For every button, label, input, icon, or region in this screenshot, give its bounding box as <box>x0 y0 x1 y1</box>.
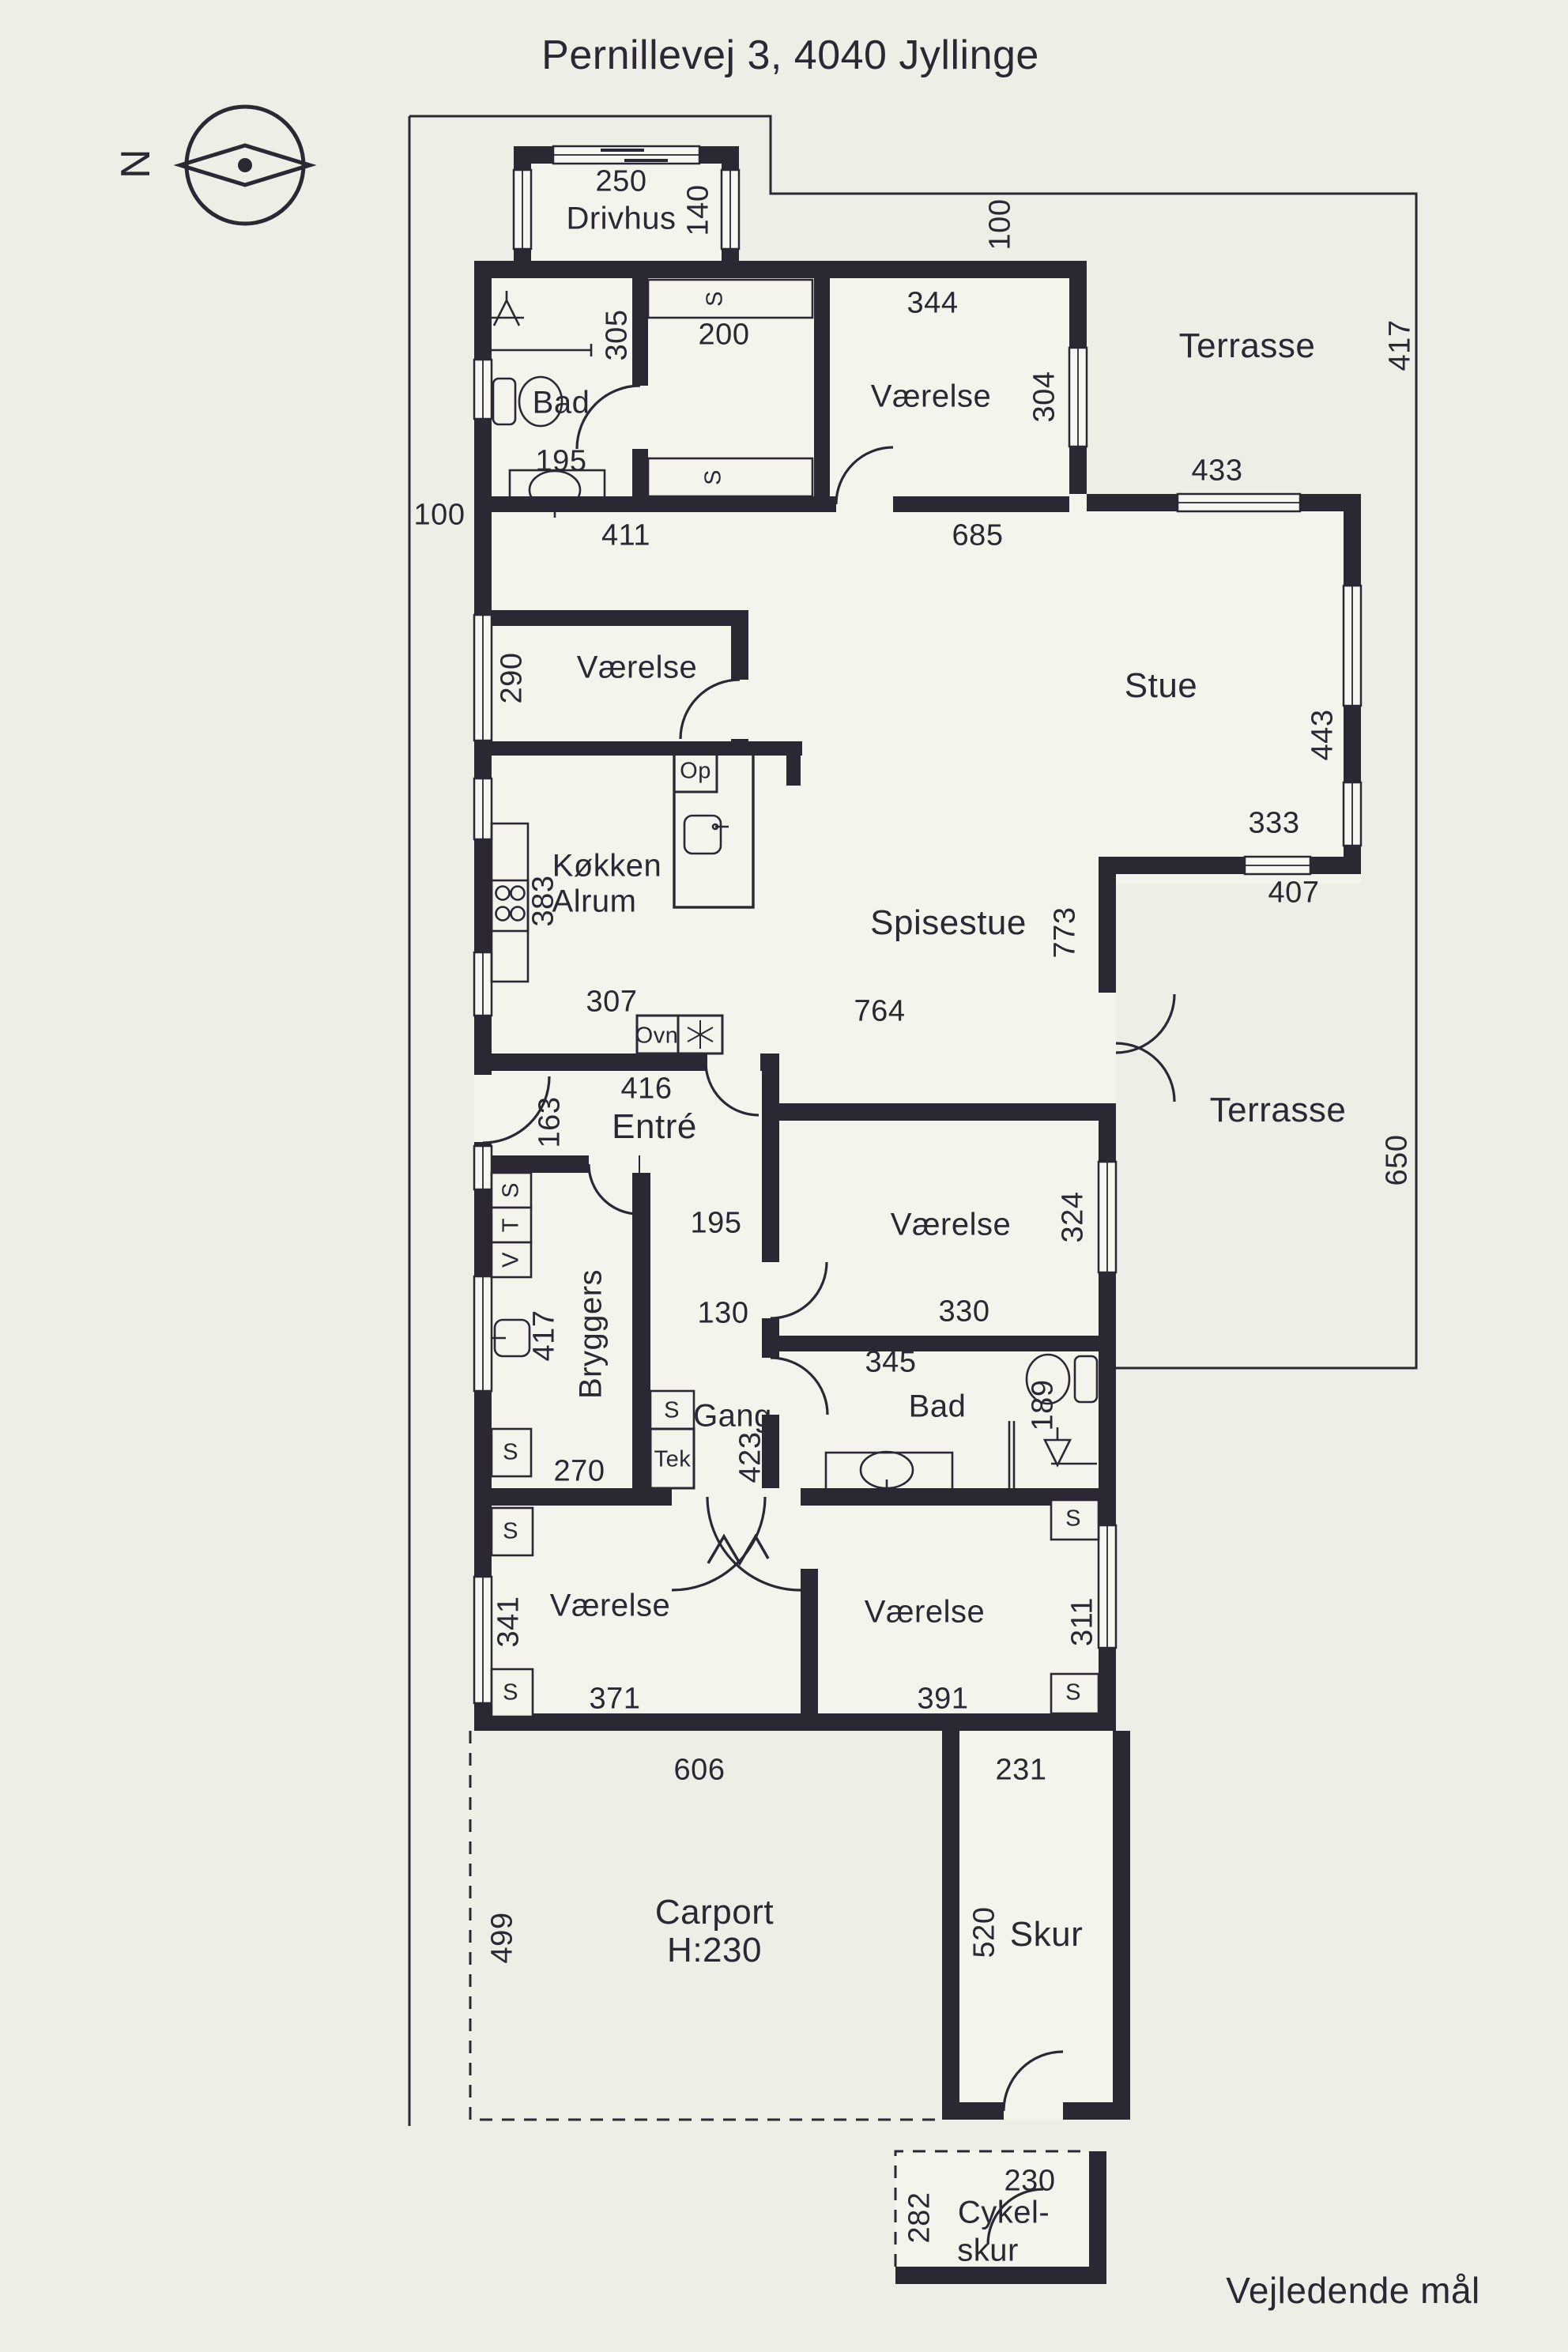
dim-drivhus-depth: 140 <box>682 185 716 236</box>
dim-gang-195: 195 <box>691 1207 742 1241</box>
dim-stue-685: 685 <box>952 519 1004 553</box>
dim-vaerelse-304: 304 <box>1028 371 1062 423</box>
closet-s-label: S <box>503 1440 518 1466</box>
dim-bad-195: 195 <box>536 445 587 479</box>
compass-north-label: N <box>112 149 160 179</box>
dishwasher-label: Op <box>680 759 711 785</box>
room-alrum: Alrum <box>552 884 637 920</box>
room-cykelskur-line1: Cykel- <box>958 2196 1050 2231</box>
dim-dressing-200: 200 <box>699 318 750 352</box>
room-vaerelse-ne: Værelse <box>871 379 991 415</box>
carport-height: H:230 <box>667 1931 762 1970</box>
dim-entre-163: 163 <box>533 1097 567 1148</box>
closet-s-label: S <box>1065 1680 1081 1706</box>
dim-vaerelse-330: 330 <box>939 1295 990 1329</box>
dim-koekken-383: 383 <box>527 876 561 927</box>
closet-s-label: S <box>701 469 727 485</box>
room-bad-n: Bad <box>533 386 590 421</box>
room-bryggers: Bryggers <box>574 1269 609 1399</box>
dim-vaerelse-391: 391 <box>918 1683 969 1717</box>
dim-stue-443: 443 <box>1306 710 1340 761</box>
dim-drivhus-width: 250 <box>596 165 647 199</box>
dim-vaerelse-311: 311 <box>1066 1597 1100 1646</box>
dim-cykelskur-230: 230 <box>1004 2165 1056 2199</box>
dim-south-231: 231 <box>996 1754 1047 1788</box>
footer-note: Vejledende mål <box>1226 2269 1480 2312</box>
dim-bad-345: 345 <box>865 1346 917 1380</box>
dim-433: 433 <box>1192 454 1243 488</box>
room-vaerelse-m: Værelse <box>891 1208 1011 1243</box>
dim-site-left: 100 <box>414 499 465 533</box>
dim-bryggers-417: 417 <box>528 1310 562 1362</box>
dim-bad-305: 305 <box>601 310 635 361</box>
dim-carport-499: 499 <box>486 1913 520 1964</box>
room-spisestue: Spisestue <box>870 903 1027 943</box>
washer-v-label: V <box>499 1252 525 1268</box>
room-cykelskur-line2: skur <box>957 2233 1019 2269</box>
dim-cykelskur-282: 282 <box>903 2192 937 2244</box>
dim-vaerelse-344: 344 <box>907 287 959 321</box>
room-carport: Carport <box>655 1893 774 1932</box>
room-gang: Gang <box>693 1399 772 1434</box>
room-terrasse-ne: Terrasse <box>1179 326 1316 366</box>
room-drivhus: Drivhus <box>566 202 676 237</box>
page-title: Pernillevej 3, 4040 Jyllinge <box>541 32 1039 79</box>
dim-south-606: 606 <box>674 1754 726 1788</box>
dim-skur-520: 520 <box>968 1907 1002 1958</box>
room-vaerelse-br: Værelse <box>865 1595 985 1630</box>
dim-site-top: 100 <box>984 199 1018 251</box>
dim-bad-189: 189 <box>1027 1380 1061 1431</box>
dim-vaerelse-324: 324 <box>1057 1192 1091 1243</box>
dim-gang-423: 423 <box>734 1432 768 1483</box>
dim-boundary-417: 417 <box>1384 320 1418 371</box>
closet-s-label: S <box>1065 1506 1081 1532</box>
room-skur: Skur <box>1010 1915 1083 1954</box>
closet-s-label: S <box>503 1519 518 1545</box>
room-koekken: Køkken <box>552 849 662 884</box>
room-stue: Stue <box>1125 666 1198 706</box>
floorplan-canvas <box>0 0 1568 2352</box>
dim-407: 407 <box>1268 876 1320 910</box>
dim-boundary-650: 650 <box>1381 1135 1415 1186</box>
room-vaerelse-bl: Værelse <box>550 1589 670 1624</box>
room-bad-s: Bad <box>909 1389 967 1425</box>
dim-333: 333 <box>1249 807 1300 841</box>
dim-spisestue-773: 773 <box>1049 907 1083 959</box>
closet-s-label: S <box>503 1680 518 1706</box>
dim-hall-411: 411 <box>601 519 650 553</box>
dim-entre-416: 416 <box>621 1072 673 1106</box>
dim-vaerelse-290: 290 <box>496 653 530 704</box>
room-entre: Entré <box>612 1107 697 1147</box>
dryer-t-label: T <box>499 1218 525 1232</box>
room-terrasse-e: Terrasse <box>1210 1091 1347 1130</box>
compass-icon <box>180 107 310 224</box>
dim-vaerelse-341: 341 <box>492 1596 526 1648</box>
room-tek: Tek <box>654 1447 692 1473</box>
dim-koekken-307: 307 <box>586 986 638 1020</box>
room-vaerelse-w: Værelse <box>577 650 697 686</box>
closet-s-label: S <box>499 1182 525 1198</box>
dim-bryggers-270: 270 <box>554 1455 605 1489</box>
dim-spisestue-764: 764 <box>854 995 906 1029</box>
dim-gang-130: 130 <box>698 1297 749 1331</box>
dim-vaerelse-371: 371 <box>590 1683 641 1717</box>
closet-s-label: S <box>703 291 729 307</box>
closet-s-label: S <box>664 1398 680 1424</box>
oven-label: Ovn <box>635 1023 679 1050</box>
